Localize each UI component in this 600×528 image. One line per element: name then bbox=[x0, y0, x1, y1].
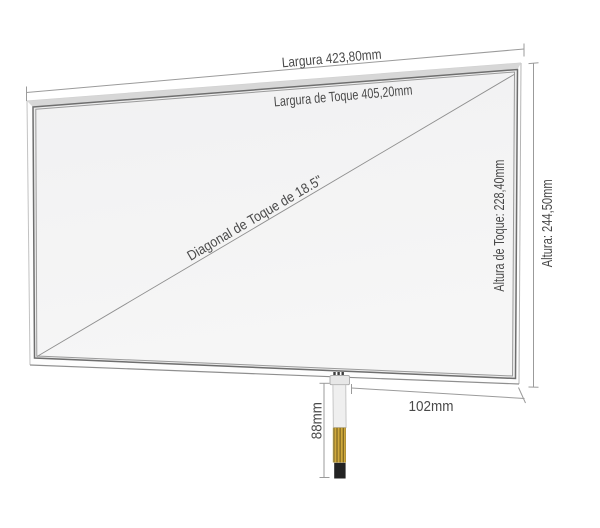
svg-text:88mm: 88mm bbox=[309, 402, 326, 439]
svg-text:Altura de Toque: 228,40mm: Altura de Toque: 228,40mm bbox=[491, 160, 508, 292]
svg-text:Altura: 244,50mm: Altura: 244,50mm bbox=[539, 179, 556, 267]
svg-text:Largura 423,80mm: Largura 423,80mm bbox=[281, 46, 382, 71]
svg-text:102mm: 102mm bbox=[409, 398, 454, 415]
